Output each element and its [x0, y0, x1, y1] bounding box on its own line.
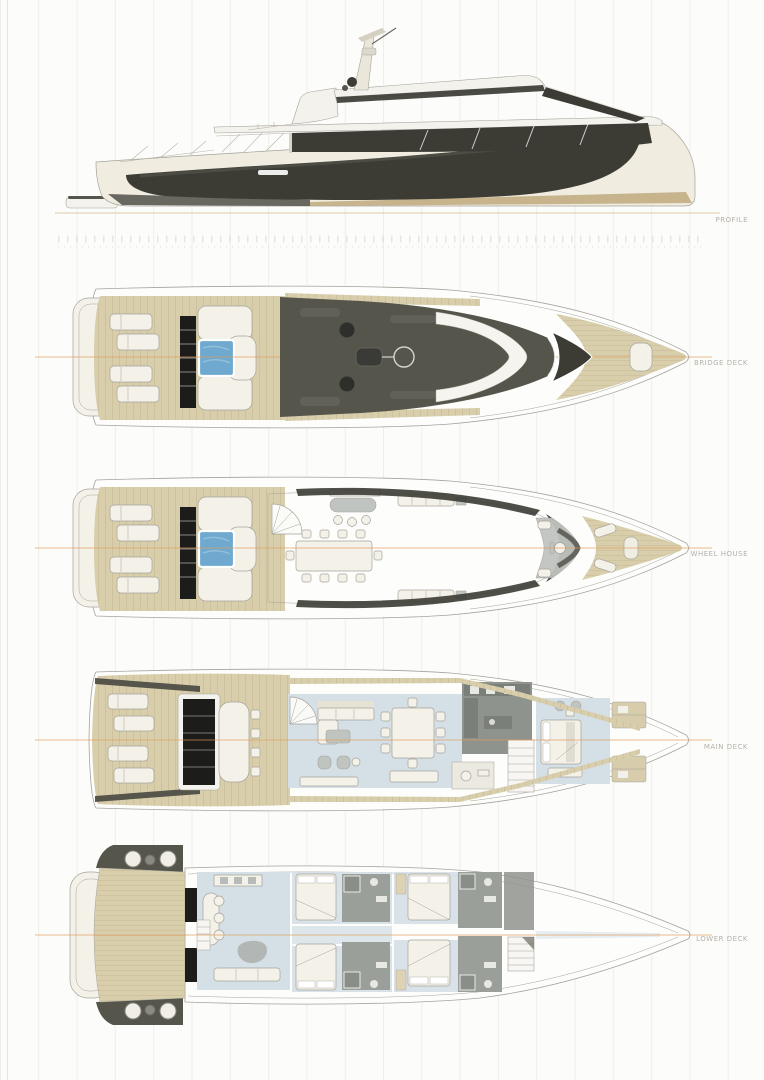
main-deck-label: MAIN DECK	[668, 743, 748, 751]
lower-deck-label: LOWER DECK	[668, 935, 748, 943]
radar-dome	[339, 376, 355, 392]
vip-cabin	[394, 940, 458, 992]
sideboard	[390, 771, 438, 782]
master-bed	[541, 720, 581, 764]
wheel-house-label: WHEEL HOUSE	[668, 550, 748, 558]
deck-fitting	[160, 1003, 176, 1019]
bridge-deck-label: BRIDGE DECK	[668, 359, 748, 367]
tv-sideboard	[300, 777, 358, 786]
deck-fitting	[160, 851, 176, 867]
armchair	[337, 756, 350, 769]
guest-cabin	[292, 942, 392, 992]
profile-label: PROFILE	[668, 216, 748, 224]
bow-pad	[630, 343, 652, 371]
beach-club	[197, 872, 290, 990]
aft-table	[219, 702, 249, 782]
window-strip	[185, 888, 197, 922]
armchair	[318, 756, 331, 769]
day-head	[452, 762, 494, 789]
window-strip	[185, 948, 197, 982]
deck-fitting	[125, 851, 141, 867]
radar-dome	[347, 77, 357, 87]
deck-fitting	[125, 1003, 141, 1019]
utility-room	[504, 872, 534, 930]
radar-dome	[339, 322, 355, 338]
sofa	[214, 968, 280, 981]
skylight-glass	[183, 699, 215, 785]
vip-cabin	[394, 872, 458, 924]
deck-fitting	[145, 1005, 155, 1015]
guest-cabin	[292, 872, 392, 924]
stairs	[508, 937, 534, 971]
yacht-ga-drawing	[0, 0, 764, 1080]
yacht-ga-sheet: PROFILE BRIDGE DECK WHEEL HOUSE MAIN DEC…	[0, 0, 764, 1080]
deck-fitting	[145, 855, 155, 865]
